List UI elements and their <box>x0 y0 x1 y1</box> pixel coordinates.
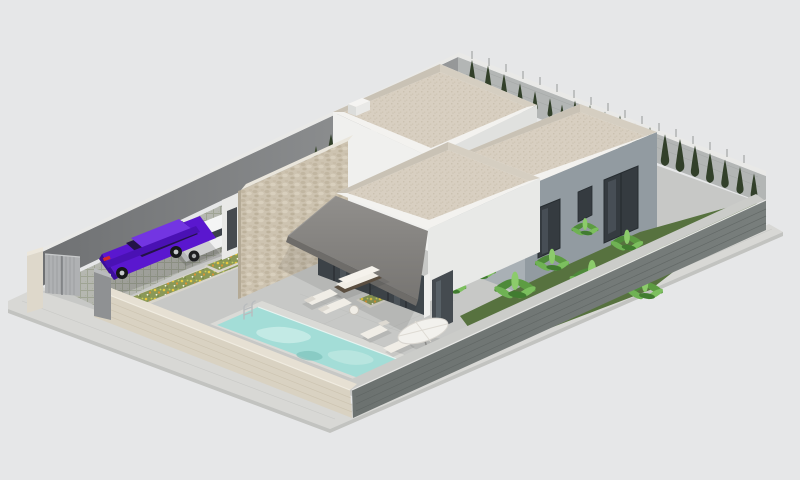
terrace-column <box>424 273 430 318</box>
mid-pillar <box>94 272 111 320</box>
isometric-scene <box>0 0 800 480</box>
corner-pillar <box>27 251 43 313</box>
villa-render-image <box>0 0 800 480</box>
stone-wall-edge <box>238 190 241 299</box>
entry-door <box>227 207 237 251</box>
